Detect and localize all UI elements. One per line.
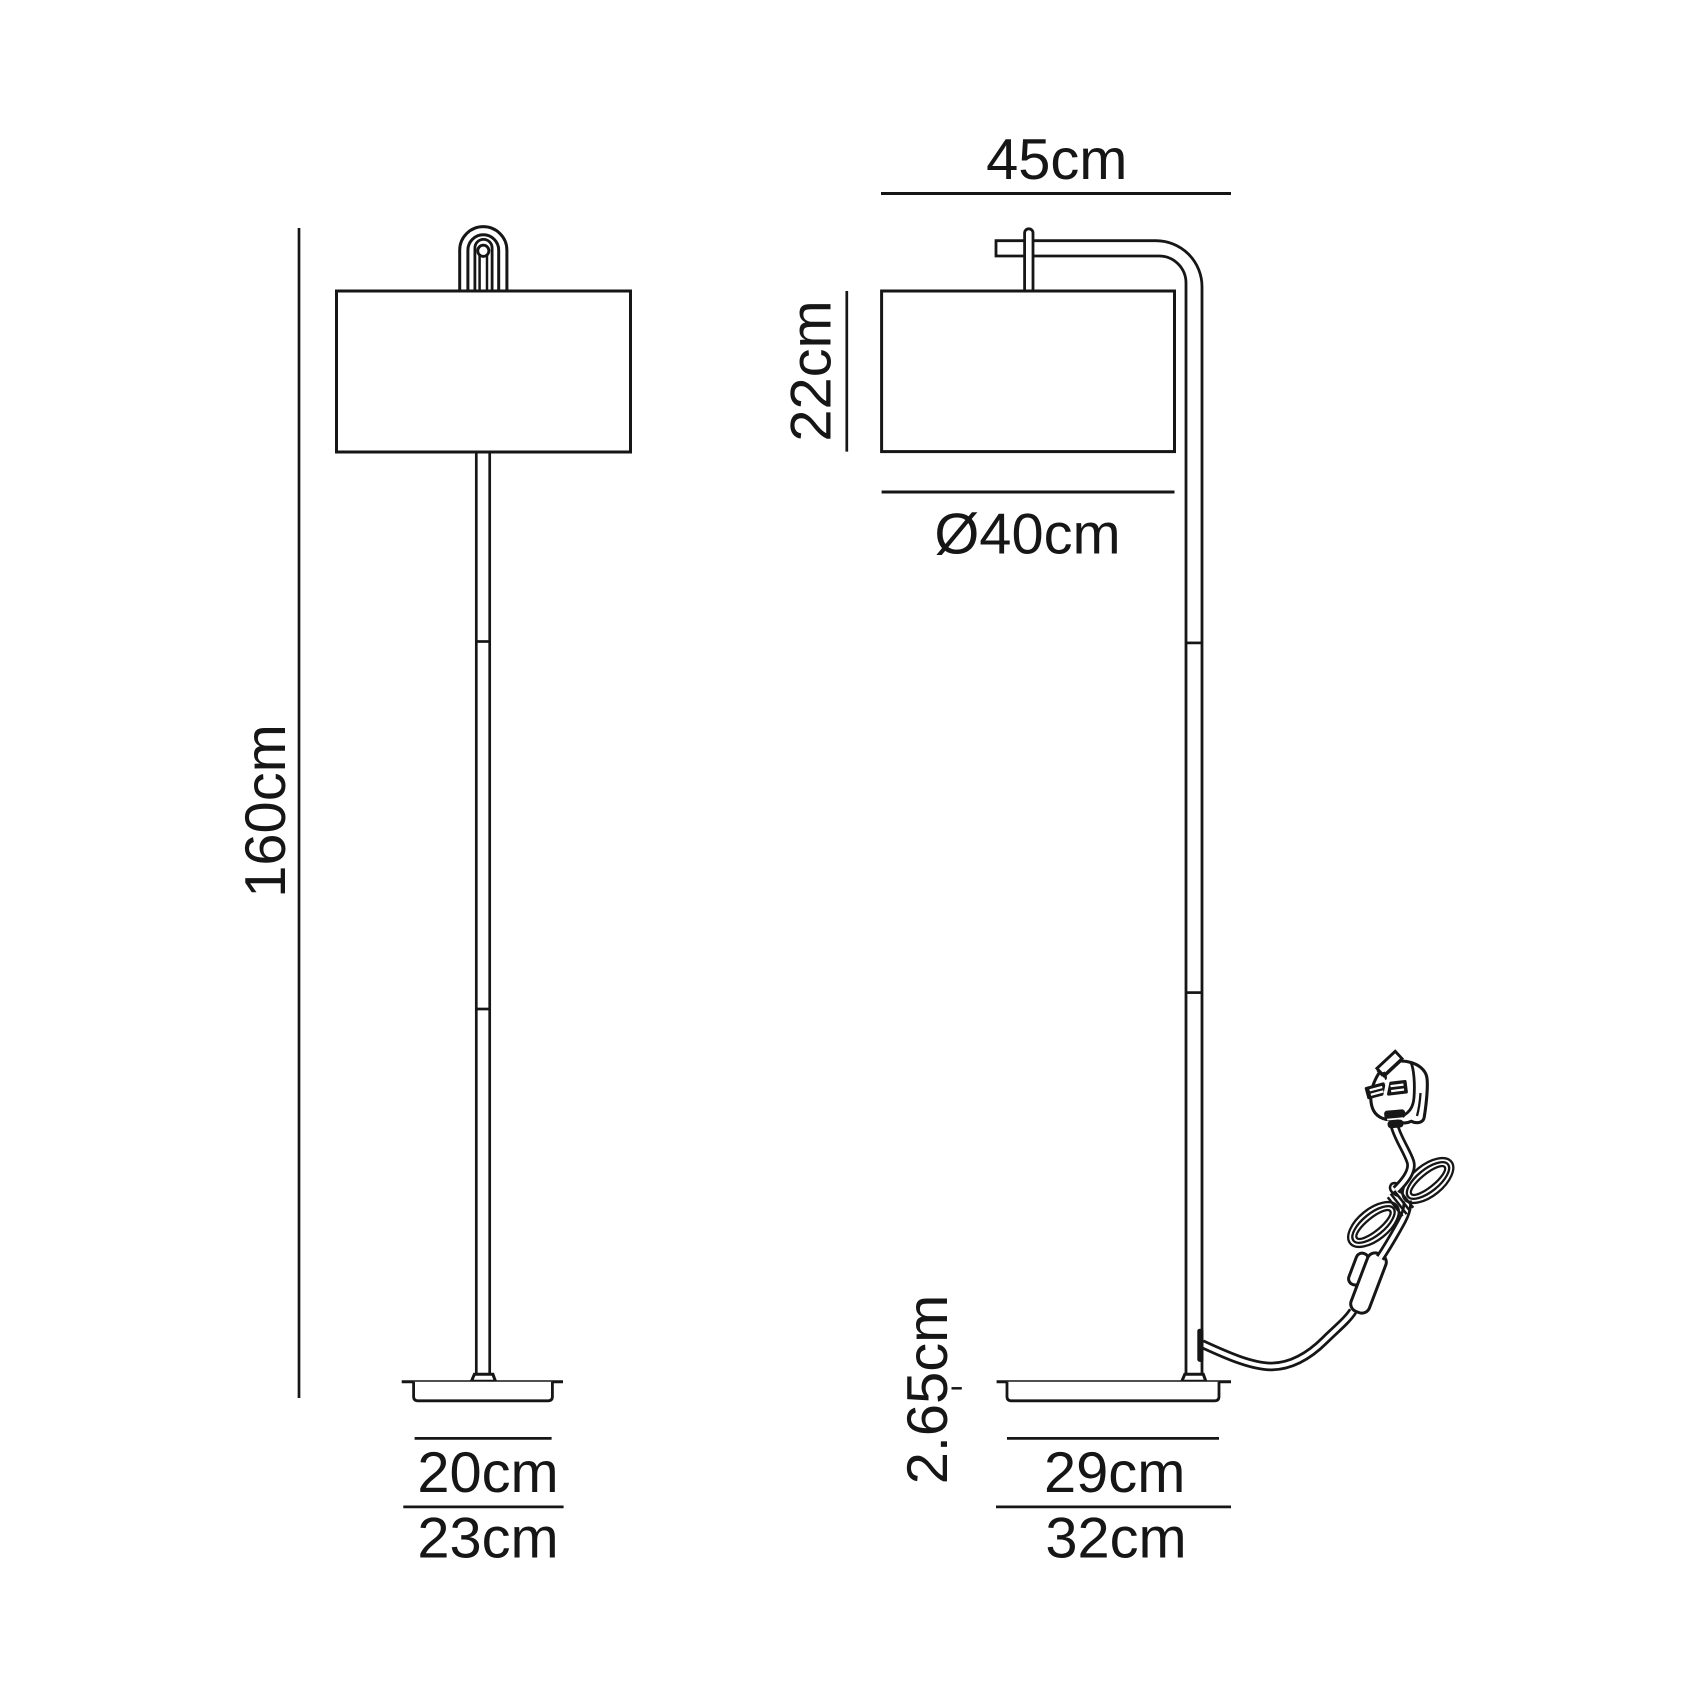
svg-text:23cm: 23cm (417, 1507, 558, 1571)
svg-text:22cm: 22cm (780, 300, 844, 441)
svg-text:2.65cm: 2.65cm (896, 1295, 960, 1485)
svg-text:Ø40cm: Ø40cm (934, 503, 1120, 567)
svg-text:32cm: 32cm (1045, 1507, 1186, 1571)
svg-text:160cm: 160cm (234, 724, 298, 897)
svg-text:45cm: 45cm (986, 128, 1127, 192)
svg-text:29cm: 29cm (1044, 1441, 1185, 1505)
svg-text:20cm: 20cm (417, 1441, 558, 1505)
